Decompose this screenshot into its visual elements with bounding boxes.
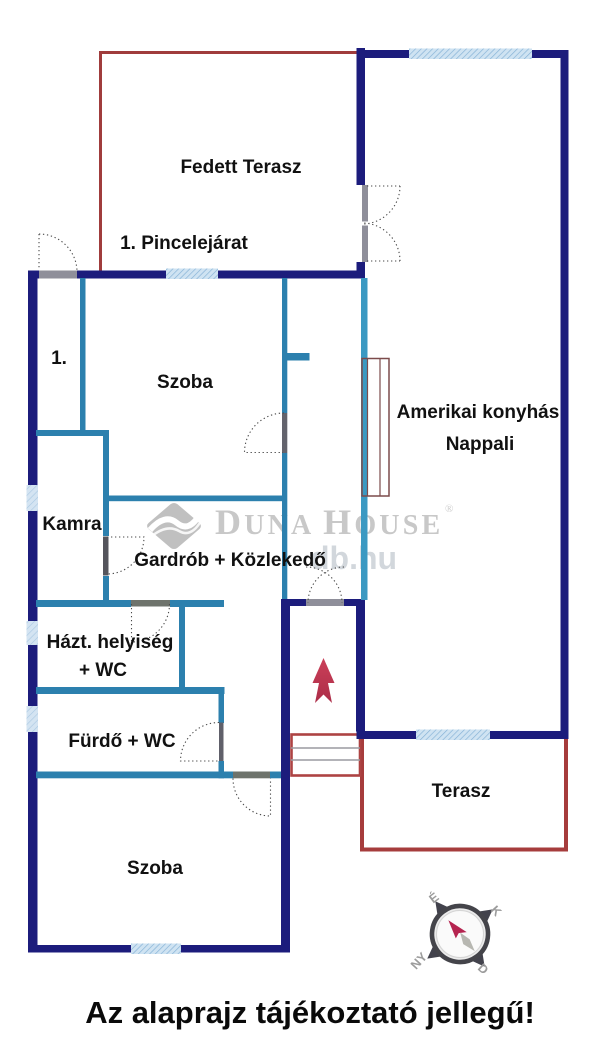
svg-text:Fedett Terasz: Fedett Terasz (180, 157, 301, 178)
svg-text:1. Pincelejárat: 1. Pincelejárat (120, 233, 248, 254)
svg-text:Az alaprajz tájékoztató jelleg: Az alaprajz tájékoztató jellegű! (85, 995, 535, 1030)
svg-text:Amerikai konyhás: Amerikai konyhás (397, 402, 560, 423)
svg-text:Fürdő + WC: Fürdő + WC (68, 731, 175, 752)
svg-text:Nappali: Nappali (446, 434, 515, 455)
svg-text:Szoba: Szoba (127, 858, 183, 879)
svg-text:Szoba: Szoba (157, 372, 213, 393)
svg-text:Terasz: Terasz (432, 781, 491, 802)
svg-text:®: ® (445, 503, 453, 515)
svg-text:Kamra: Kamra (42, 514, 102, 535)
svg-text:+ WC: + WC (79, 660, 127, 681)
svg-text:Házt. helyiség: Házt. helyiség (47, 632, 174, 653)
svg-text:Gardrób + Közlekedő: Gardrób + Közlekedő (134, 550, 326, 571)
svg-text:1.: 1. (51, 348, 67, 369)
